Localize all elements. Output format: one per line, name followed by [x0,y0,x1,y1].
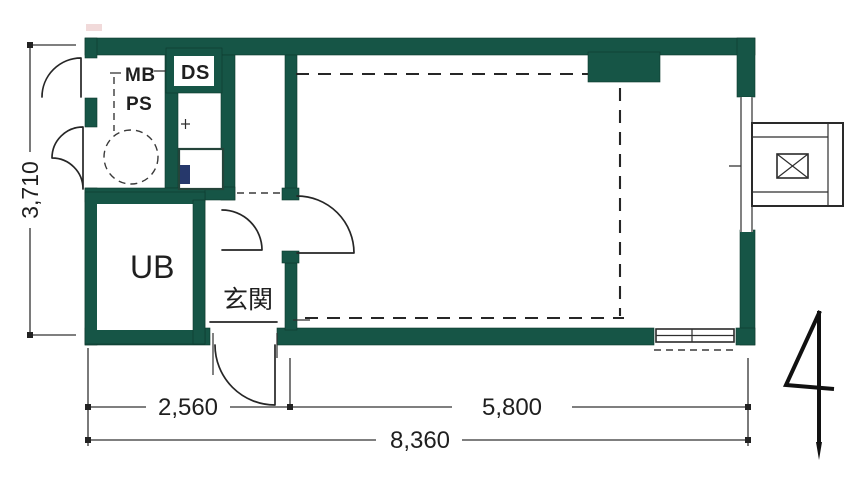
main-room-left-wall-upper [285,55,297,196]
ac-unit-icon [777,154,808,178]
scan-artifact [86,24,102,31]
exterior-wall-bottom-right [736,328,755,345]
dim-bottom-left-value: 2,560 [158,394,218,421]
washing-machine-tap [180,165,190,184]
exterior-wall-right-upper [737,38,755,97]
plus-mark-icon [181,119,190,129]
door-arc-washroom-double [52,127,83,189]
door-jamb-upper [282,188,299,200]
label-unit-bath: UB [130,249,174,285]
dim-left-value: 3,710 [17,161,43,219]
window-right [729,97,753,232]
dim-bottom-right-value: 5,800 [482,394,542,421]
door-arc-main-room [297,196,354,253]
label-duct-space: DS [181,62,210,84]
dim-bottom-total-value: 8,360 [390,427,450,454]
label-pipe-space: PS [126,94,152,115]
window-bottom [654,329,736,350]
wall-protrusion [588,52,660,82]
exterior-wall-bottom-mid [277,328,654,345]
door-arc-entrance [213,333,277,405]
exterior-wall-left-a [85,38,97,58]
exterior-wall-left-b [85,98,97,127]
label-entrance: 玄関 [223,286,273,314]
label-meter-box: MB [125,65,156,86]
floor-plan-drawing: 3,710 2,560 5,800 8,360 MB PS DS UB 玄関 [0,0,855,478]
dimension-left-3710: 3,710 [17,42,76,338]
dimension-bottom: 2,560 5,800 8,360 [85,348,751,454]
door-arc-washroom-top [42,58,81,97]
partition-genkan-left [193,200,205,344]
floor-plan-page: 3,710 2,560 5,800 8,360 MB PS DS UB 玄関 [0,0,855,478]
north-arrow-icon [786,311,834,460]
toilet-icon [104,130,158,184]
door-arc-corridor [222,210,262,250]
